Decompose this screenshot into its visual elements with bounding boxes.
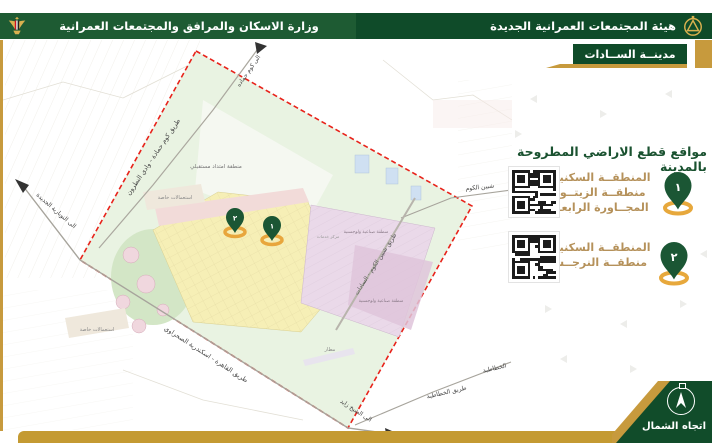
area-label: مطار <box>324 347 336 353</box>
qr-code-1 <box>508 166 560 218</box>
chevron-decoration <box>545 305 552 313</box>
gold-corner-block <box>695 40 712 68</box>
chevron-decoration <box>620 320 627 328</box>
chevron-decoration <box>700 250 707 258</box>
pin-number: ١ <box>270 223 274 231</box>
area-label: منطقة صناعية ولوجستية <box>344 230 389 235</box>
egypt-eagle-icon <box>6 15 28 37</box>
chevron-decoration <box>515 130 522 138</box>
road-label: الخطاطبة <box>482 362 507 374</box>
location-pin-1: ١ <box>656 158 700 220</box>
north-direction-label: اتجاه الشمال <box>642 421 706 432</box>
pin-number: ١ <box>675 181 682 194</box>
area-label: استعمالات خاصة <box>80 327 115 333</box>
pin-number: ٢ <box>233 215 238 223</box>
area-label: استعمالات خاصة <box>158 195 193 201</box>
area-label: منطقة صناعية ولوجستية <box>359 299 404 304</box>
authority-title: هيئة المجتمعات العمرانية الجديدة <box>364 19 676 33</box>
compass-north-icon <box>667 387 695 415</box>
city-map: طريق كوم حمادة - وادي النطرون الى كوم حم… <box>3 40 512 433</box>
north-badge-green-shape <box>612 381 712 443</box>
chevron-decoration <box>600 110 607 118</box>
authority-header-bar: هيئة المجتمعات العمرانية الجديدة <box>356 13 712 39</box>
chevron-decoration <box>530 95 537 103</box>
qr-code-2 <box>508 231 560 283</box>
north-direction-badge: اتجاه الشمال <box>612 381 712 443</box>
arrow-to-kom-hamada-icon <box>255 42 267 54</box>
pin-number: ٢ <box>671 251 678 264</box>
area-label: منطقة امتداد مستقبلي <box>190 164 242 170</box>
nuca-logo-icon <box>682 15 704 37</box>
chevron-decoration <box>680 300 687 308</box>
ministry-header-bar: وزارة الاسكان والمرافق والمجتمعات العمرا… <box>0 13 356 39</box>
chevron-decoration <box>560 355 567 363</box>
ministry-title: وزارة الاسكان والمرافق والمجتمعات العمرا… <box>28 19 350 33</box>
city-badge-underline <box>546 64 687 68</box>
location-pin-2: ٢ <box>652 228 696 290</box>
area-label: مركز خدمات <box>317 234 339 239</box>
bottom-gold-bar <box>18 431 712 443</box>
chevron-decoration <box>630 365 637 373</box>
city-title-badge: مدينــة الســادات <box>573 44 687 64</box>
chevron-decoration <box>665 90 672 98</box>
page: وزارة الاسكان والمرافق والمجتمعات العمرا… <box>0 0 712 443</box>
